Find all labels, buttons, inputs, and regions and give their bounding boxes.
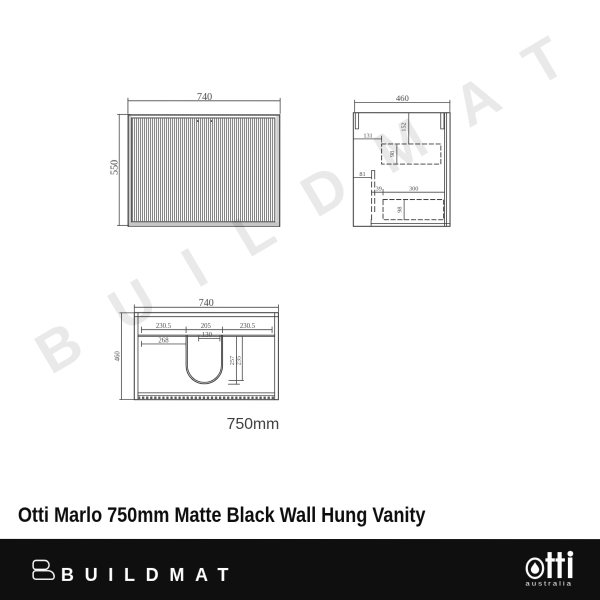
svg-text:130: 130 xyxy=(202,332,213,339)
svg-text:750mm: 750mm xyxy=(227,416,280,433)
svg-text:205: 205 xyxy=(201,323,212,330)
svg-text:235: 235 xyxy=(235,356,242,365)
svg-text:BUILDMAT: BUILDMAT xyxy=(25,3,600,387)
svg-text:300: 300 xyxy=(409,186,418,193)
svg-text:australia: australia xyxy=(525,580,573,587)
svg-text:BUILDMAT: BUILDMAT xyxy=(61,565,239,585)
svg-text:Otti Marlo 750mm Matte Black W: Otti Marlo 750mm Matte Black Wall Hung V… xyxy=(18,503,426,527)
svg-text:460: 460 xyxy=(396,93,409,103)
svg-text:268: 268 xyxy=(158,338,169,345)
svg-text:740: 740 xyxy=(197,92,212,103)
svg-text:98: 98 xyxy=(397,207,404,213)
svg-text:550: 550 xyxy=(109,160,120,175)
svg-text:230.5: 230.5 xyxy=(240,323,256,330)
